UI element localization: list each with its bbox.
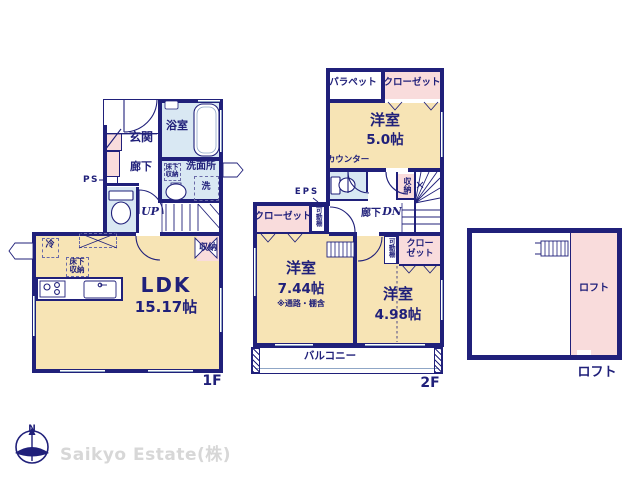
- label-hall-1f: 廊下: [130, 161, 152, 173]
- label-room-b: 洋室: [286, 260, 316, 277]
- label-underfloor-ldk-line2: 収納: [70, 265, 85, 274]
- label-closet-right-line2: ゼット: [406, 249, 433, 259]
- label-ldk: LDK: [141, 274, 192, 296]
- floorplan-canvas: 玄関 廊下 浴室 洗面所 床下 収納 洗 PS UP 収納 冷 床下 収納 LD…: [0, 0, 640, 480]
- label-underfloor-washroom: 床下 収納: [166, 164, 179, 179]
- label-closet-right-line1: クロー: [406, 239, 433, 249]
- label-ldk-size: 15.17帖: [135, 299, 197, 316]
- label-room-c-size: 4.98帖: [375, 308, 422, 323]
- label-floor2: 2F: [420, 376, 439, 392]
- label-dn: DN: [382, 206, 402, 218]
- label-room-a: 洋室: [370, 112, 400, 129]
- label-room-a-size: 5.0帖: [366, 133, 403, 148]
- label-floor1: 1F: [202, 374, 221, 390]
- label-shelf-left: 可動棚: [314, 207, 321, 227]
- label-shelf-right: 可動棚: [387, 238, 394, 258]
- label-eps: EPS: [295, 188, 319, 198]
- label-closet-left: クローゼット: [254, 212, 311, 223]
- fixtures-drawing: [0, 0, 640, 480]
- label-storage-2f: 収納: [402, 177, 411, 193]
- label-room-b-note: ※通路・棚含: [277, 300, 325, 309]
- label-balcony: バルコニー: [304, 351, 356, 363]
- label-entrance: 玄関: [129, 131, 153, 144]
- label-fridge: 冷: [45, 240, 54, 250]
- label-closet-right: クロー ゼット: [406, 239, 433, 259]
- label-room-c: 洋室: [383, 286, 413, 303]
- label-laundry: 洗: [201, 182, 210, 192]
- label-closet-top: クローゼット: [383, 78, 440, 89]
- label-bath: 浴室: [166, 120, 188, 132]
- label-loft-inner: ロフト: [579, 283, 609, 294]
- label-ps: PS: [83, 175, 99, 185]
- company-watermark: Saikyo Estate(株): [60, 440, 231, 465]
- label-up: UP: [141, 206, 159, 218]
- label-underfloor-line2: 収納: [166, 170, 179, 178]
- label-loft: ロフト: [577, 366, 616, 381]
- label-hall-2f: 廊下: [361, 208, 381, 219]
- label-washroom: 洗面所: [186, 161, 216, 172]
- label-underfloor-ldk: 床下 収納: [70, 258, 85, 275]
- label-storage-1f: 収納: [199, 243, 217, 253]
- label-parapet: パラペット: [329, 78, 377, 89]
- compass-north-label: N: [28, 424, 36, 434]
- label-counter: カウンター: [327, 156, 370, 166]
- label-room-b-size: 7.44帖: [278, 282, 325, 297]
